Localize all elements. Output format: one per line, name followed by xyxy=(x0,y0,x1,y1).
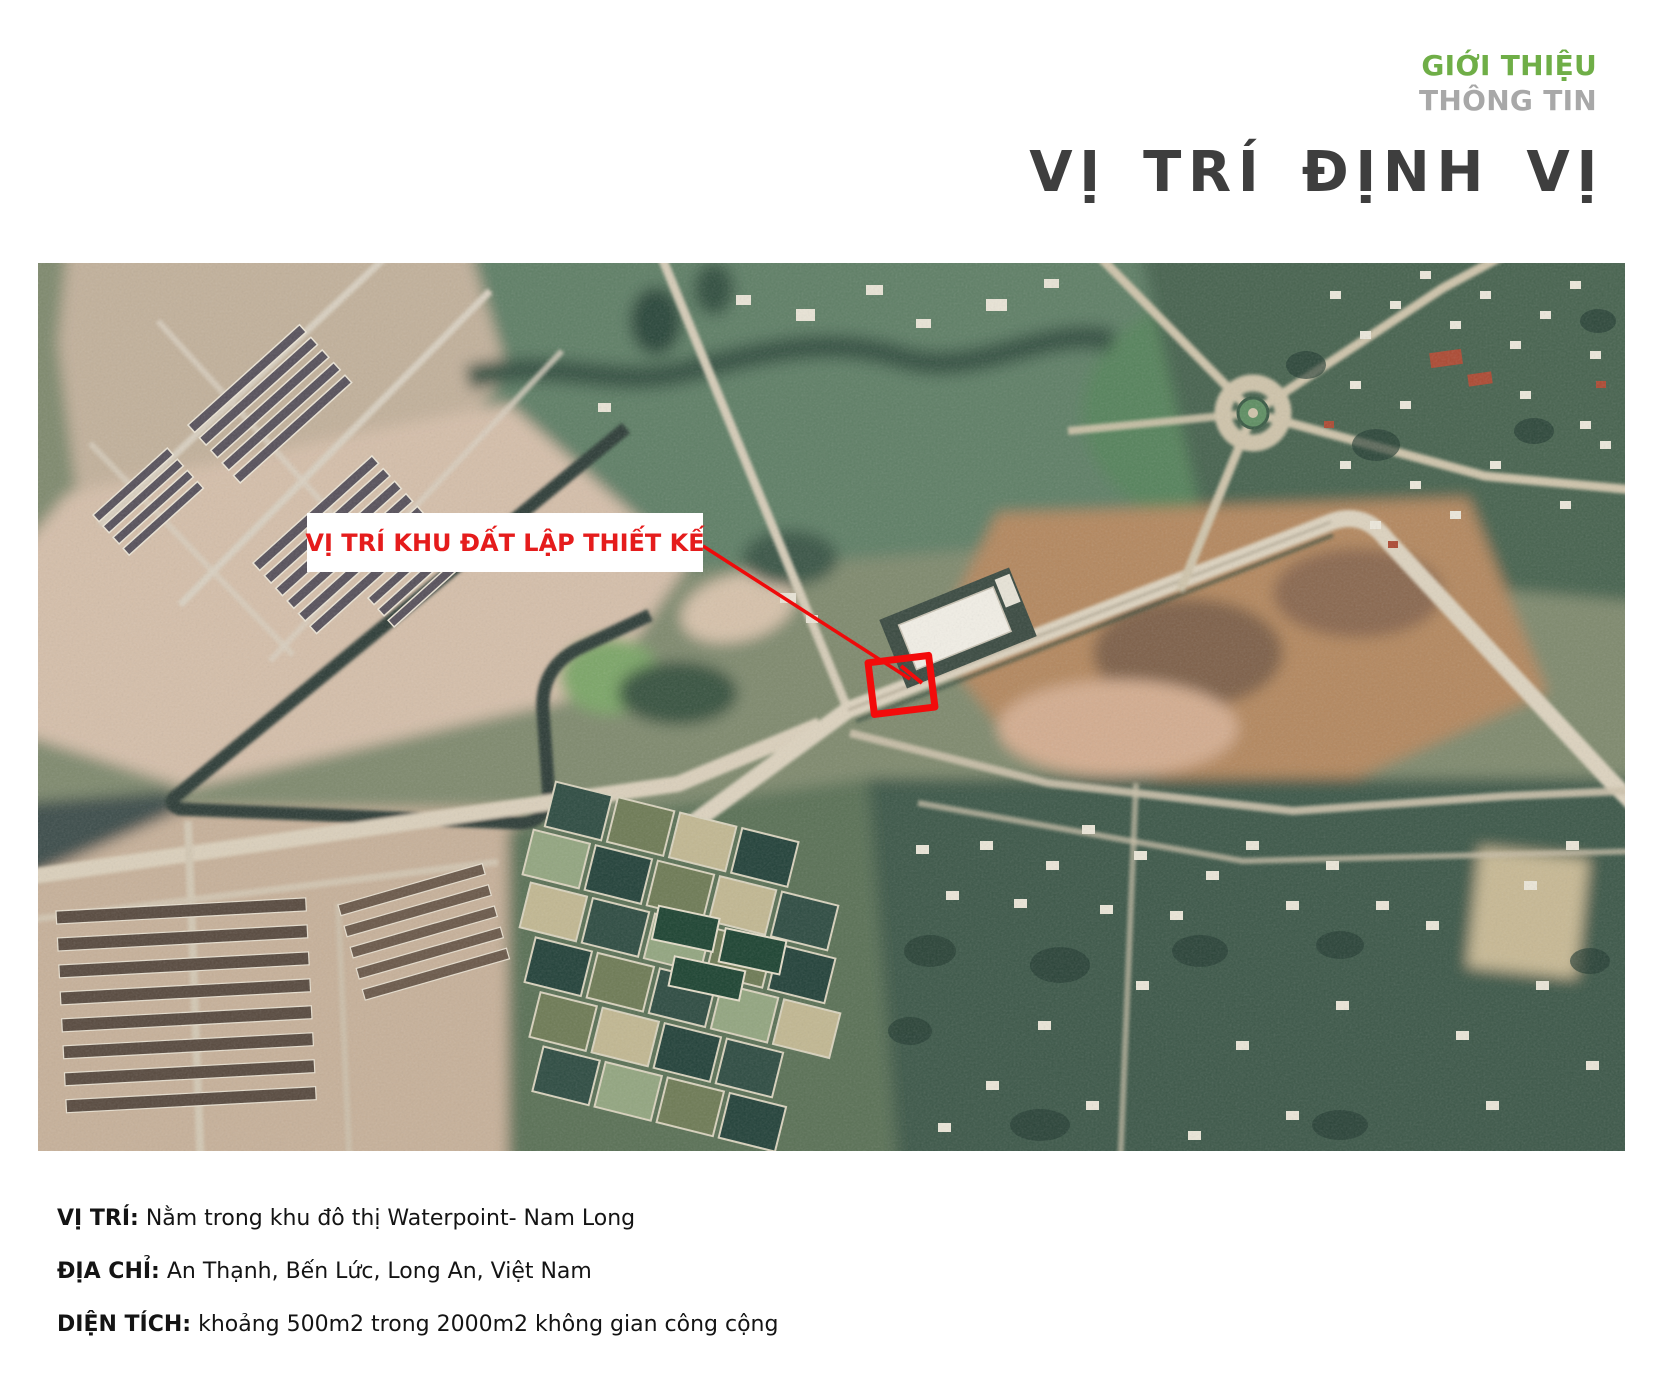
info-label: ĐỊA CHỈ: xyxy=(57,1259,160,1284)
site-callout-label: VỊ TRÍ KHU ĐẤT LẬP THIẾT KẾ xyxy=(307,513,703,572)
info-label: DIỆN TÍCH: xyxy=(57,1312,191,1337)
info-row-address: ĐỊA CHỈ:An Thạnh, Bến Lức, Long An, Việt… xyxy=(57,1245,778,1298)
header-kicker: GIỚI THIỆU THÔNG TIN xyxy=(1419,48,1597,118)
satellite-map: VỊ TRÍ KHU ĐẤT LẬP THIẾT KẾ xyxy=(38,263,1625,1151)
info-label: VỊ TRÍ: xyxy=(57,1206,139,1231)
info-value: An Thạnh, Bến Lức, Long An, Việt Nam xyxy=(167,1259,592,1284)
photo-grain-overlay xyxy=(38,263,1625,1151)
info-value: Nằm trong khu đô thị Waterpoint- Nam Lon… xyxy=(146,1206,635,1231)
info-block: VỊ TRÍ:Nằm trong khu đô thị Waterpoint- … xyxy=(57,1192,778,1351)
satellite-map-graphic xyxy=(38,263,1625,1151)
info-value: khoảng 500m2 trong 2000m2 không gian côn… xyxy=(198,1312,778,1337)
info-row-area: DIỆN TÍCH:khoảng 500m2 trong 2000m2 khôn… xyxy=(57,1298,778,1351)
kicker-secondary: THÔNG TIN xyxy=(1419,83,1597,118)
kicker-primary: GIỚI THIỆU xyxy=(1419,48,1597,83)
slide: GIỚI THIỆU THÔNG TIN VỊ TRÍ ĐỊNH VỊ xyxy=(0,0,1656,1389)
page-title: VỊ TRÍ ĐỊNH VỊ xyxy=(1029,140,1604,205)
info-row-location: VỊ TRÍ:Nằm trong khu đô thị Waterpoint- … xyxy=(57,1192,778,1245)
